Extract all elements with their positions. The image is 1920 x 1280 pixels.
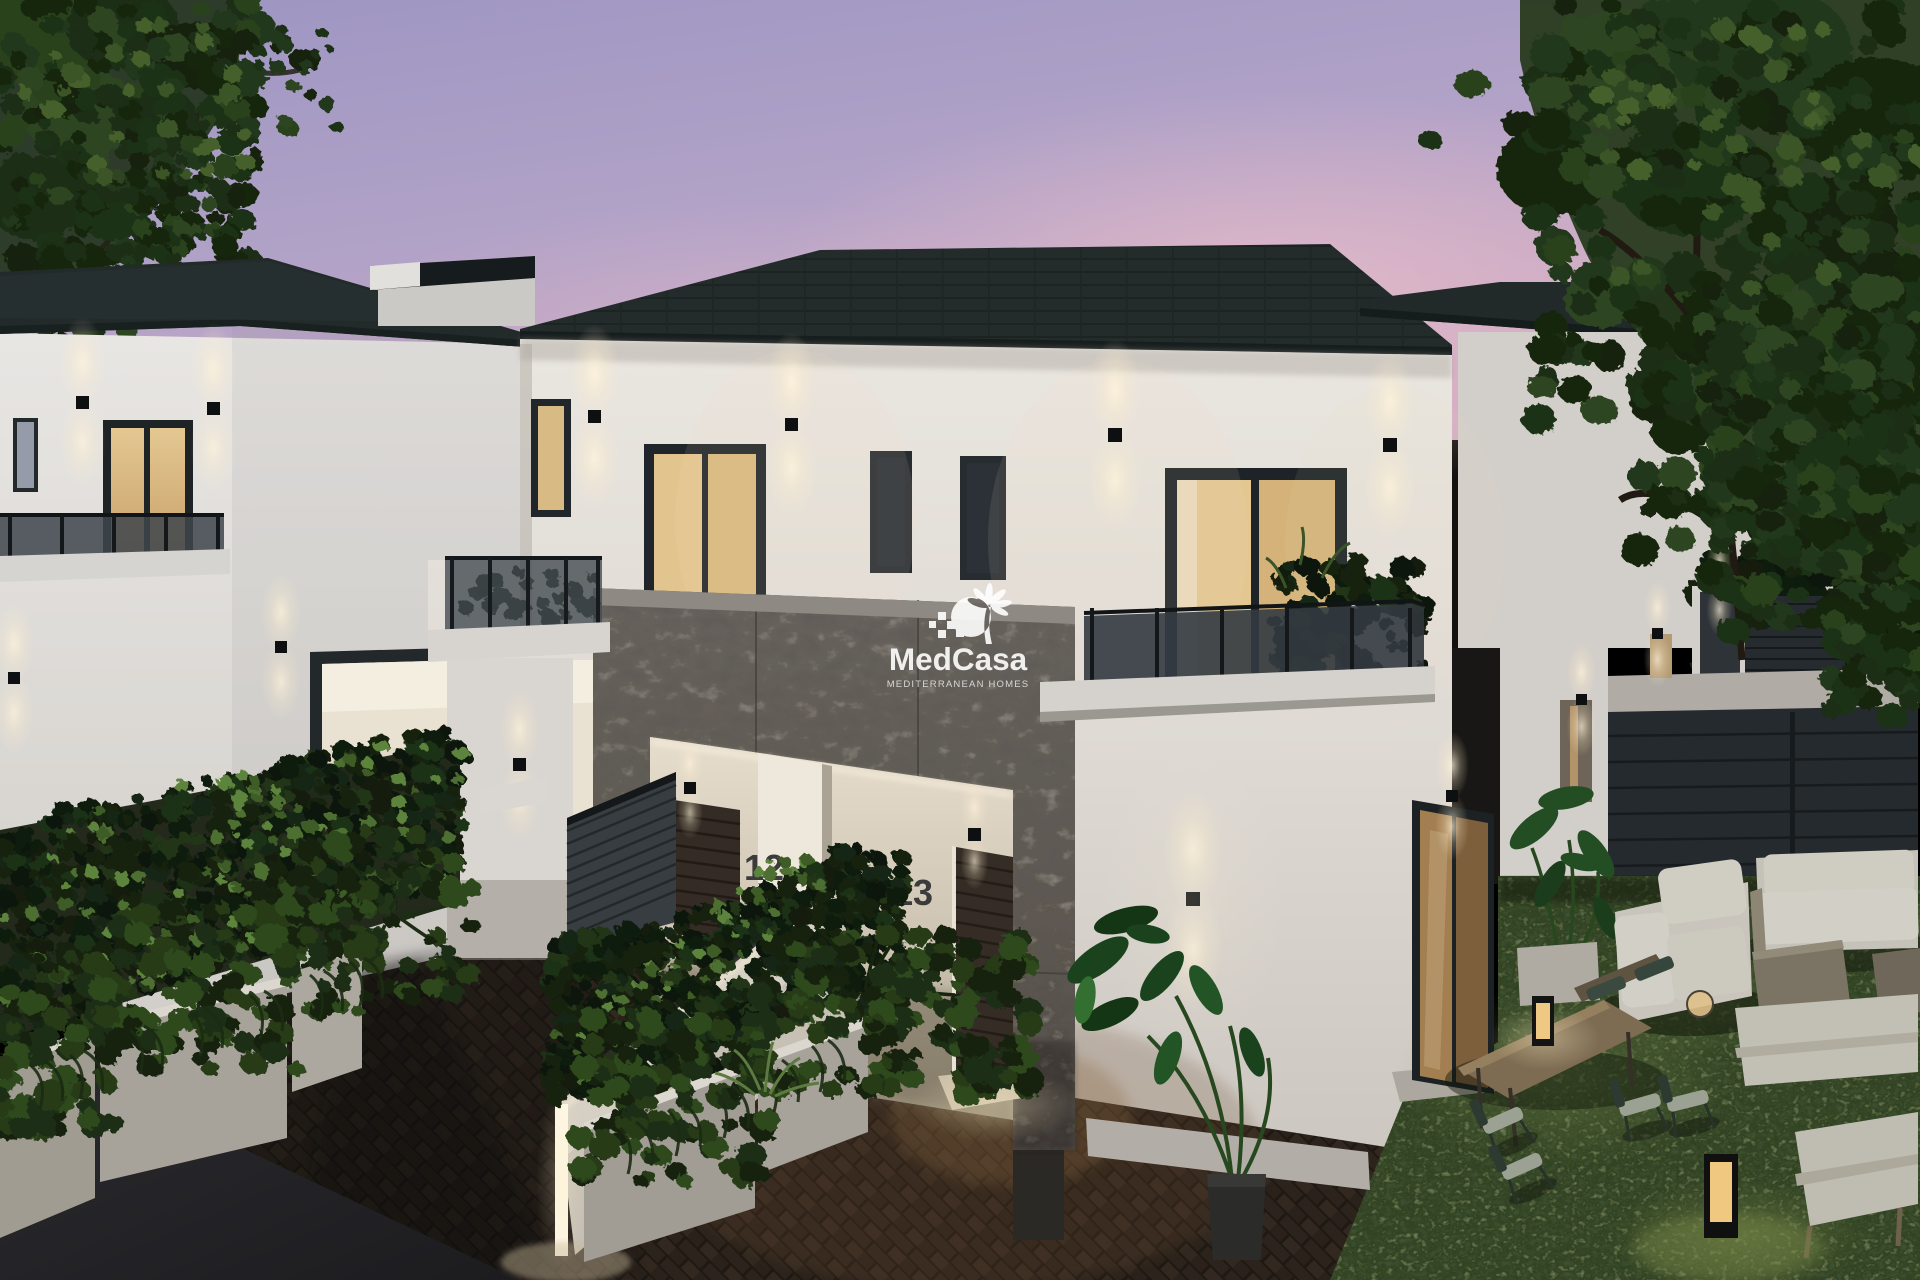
- svg-text:MEDITERRANEAN HOMES: MEDITERRANEAN HOMES: [887, 679, 1030, 690]
- svg-text:MedCasa: MedCasa: [889, 641, 1028, 677]
- svg-text:12: 12: [744, 847, 784, 888]
